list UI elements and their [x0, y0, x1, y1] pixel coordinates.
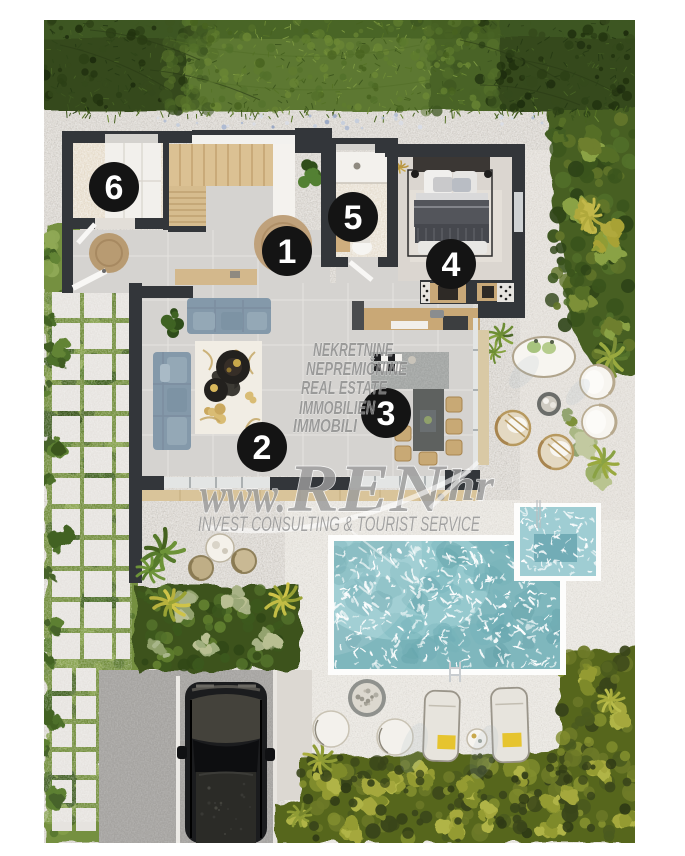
- svg-text:NEKRETNINE: NEKRETNINE: [313, 340, 394, 360]
- svg-text:NEPREMIČNINE: NEPREMIČNINE: [306, 358, 408, 379]
- svg-text:1: 1: [278, 233, 297, 271]
- svg-text:2: 2: [253, 429, 272, 467]
- svg-text:6: 6: [105, 169, 124, 207]
- svg-text:REAL ESTATE: REAL ESTATE: [301, 378, 388, 398]
- svg-text:INVEST CONSULTING & TOURIST SE: INVEST CONSULTING & TOURIST SERVICE: [198, 513, 481, 536]
- svg-text:IMMOBILIEN: IMMOBILIEN: [299, 398, 376, 418]
- svg-text:3: 3: [377, 395, 396, 433]
- svg-text:4: 4: [442, 246, 461, 284]
- svg-text:5: 5: [344, 199, 363, 237]
- svg-text:IMMOBILI: IMMOBILI: [293, 416, 358, 436]
